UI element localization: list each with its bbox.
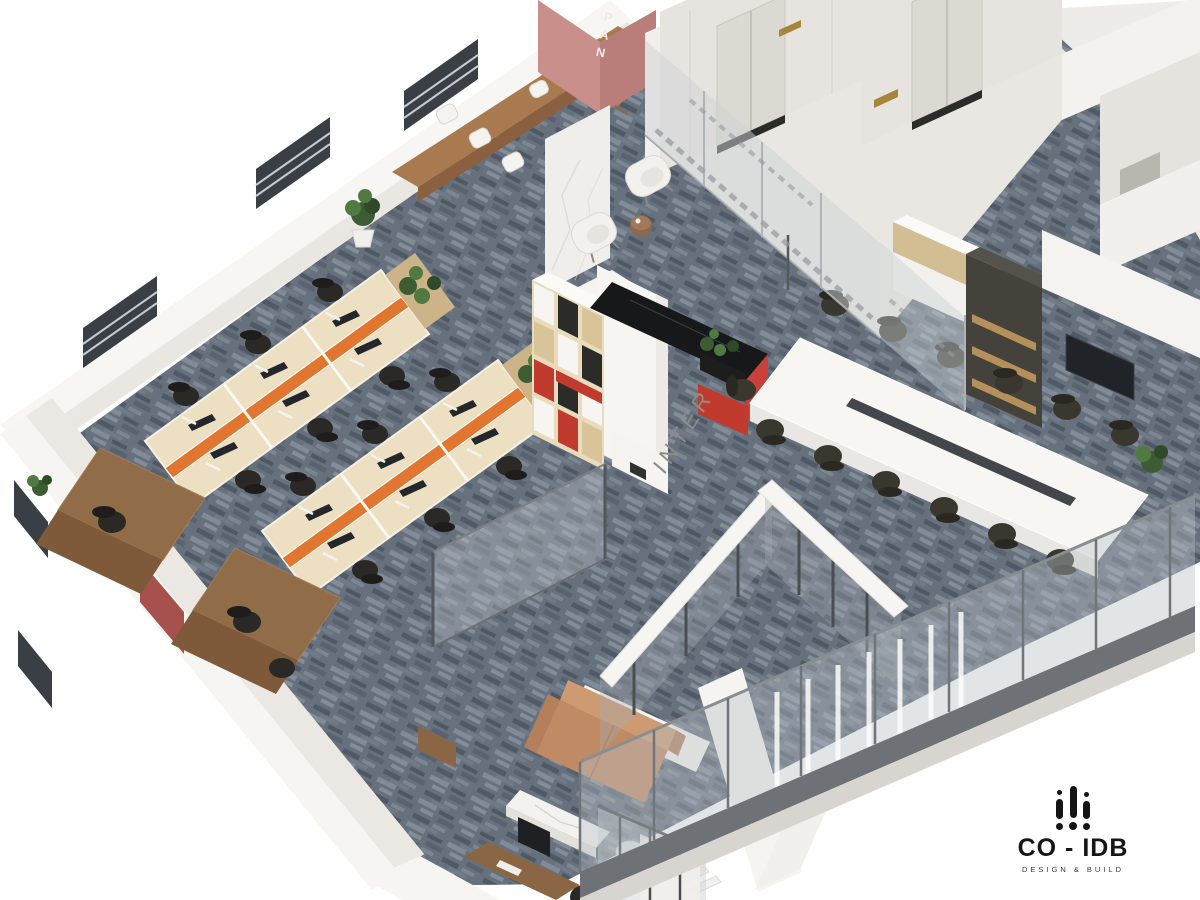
- logo-tagline: DESIGN & BUILD: [988, 865, 1158, 874]
- brand-logo: CO - IDB DESIGN & BUILD: [988, 772, 1158, 874]
- logo-bars-icon: [988, 772, 1158, 830]
- office-3d-render: PAN INTER CO - IDB DESIGN & BUILD: [0, 0, 1200, 900]
- render-canvas: [0, 0, 1200, 900]
- logo-wordmark: CO - IDB: [988, 836, 1158, 861]
